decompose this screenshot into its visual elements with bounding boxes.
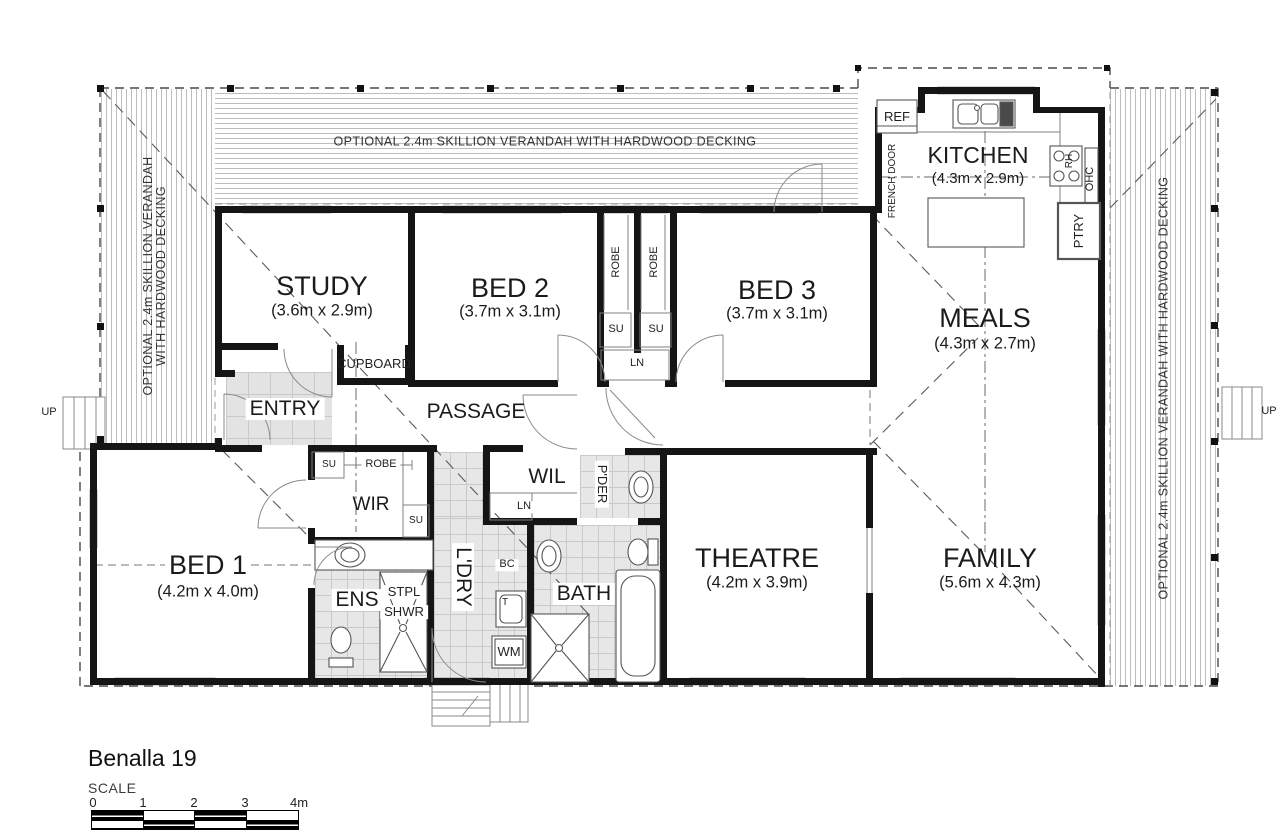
room-powder: P'DER [595, 461, 609, 508]
room-theatre: THEATRE [695, 544, 819, 572]
verandah-left-line2: WITH HARDWOOD DECKING [155, 156, 168, 395]
room-family-dims: (5.6m x 4.3m) [939, 574, 1041, 591]
su-wir-bottom: SU [405, 516, 427, 527]
robe-right-label: ROBE [649, 246, 661, 277]
room-ens: ENS [331, 589, 382, 611]
washing-machine-label: WM [497, 645, 520, 659]
scale-bar [91, 810, 299, 830]
room-bed3: BED 3 [738, 276, 816, 304]
scale-tick-1: 1 [139, 795, 146, 810]
room-bed1: BED 1 [165, 551, 251, 579]
robe-wir: ROBE [361, 459, 400, 471]
fridge-label: REF [884, 110, 910, 124]
room-bed2-dims: (3.7m x 3.1m) [459, 303, 561, 320]
room-theatre-dims: (4.2m x 3.9m) [706, 574, 808, 591]
room-kitchen: KITCHEN [928, 143, 1029, 167]
room-study: STUDY [276, 272, 368, 300]
linen-wil: LN [513, 501, 535, 513]
su-robe-right: SU [648, 324, 663, 336]
room-entry: ENTRY [246, 398, 325, 420]
su-robe-left: SU [608, 324, 623, 336]
pantry-label: PTRY [1072, 214, 1086, 248]
scale-tick-4m: 4m [290, 795, 308, 810]
floorplan-linework [0, 0, 1280, 834]
room-bath: BATH [553, 583, 615, 605]
robe-left-label: ROBE [611, 246, 623, 277]
room-passage: PASSAGE [427, 401, 526, 423]
linen-robes: LN [630, 358, 644, 370]
floor-plan: OPTIONAL 2.4m SKILLION VERANDAH WITH HAR… [0, 0, 1280, 834]
room-laundry: L'DRY [452, 543, 474, 611]
shower-shwr-label: SHWR [380, 605, 428, 619]
room-bed3-dims: (3.7m x 3.1m) [726, 305, 828, 322]
rangehood-label: RH [1065, 154, 1076, 168]
broom-cupboard-label: BC [495, 559, 518, 571]
scale-tick-2: 2 [190, 795, 197, 810]
french-door-label: FRENCH DOOR [888, 144, 899, 218]
ohc-label: OHC [1085, 167, 1097, 191]
scale-tick-3: 3 [241, 795, 248, 810]
verandah-left-label: OPTIONAL 2.4m SKILLION VERANDAH WITH HAR… [142, 156, 168, 395]
up-left-label: UP [41, 407, 56, 419]
room-wil: WIL [528, 466, 565, 488]
shower-stpl-label: STPL [384, 585, 425, 599]
plan-title: Benalla 19 [88, 745, 197, 772]
room-family: FAMILY [943, 544, 1037, 572]
room-study-dims: (3.6m x 2.9m) [271, 302, 373, 319]
room-bed1-dims: (4.2m x 4.0m) [153, 583, 263, 600]
scale-label: SCALE [88, 780, 136, 796]
verandah-top-label: OPTIONAL 2.4m SKILLION VERANDAH WITH HAR… [334, 135, 757, 148]
room-meals-dims: (4.3m x 2.7m) [934, 335, 1036, 352]
room-wir: WIR [353, 495, 390, 515]
verandah-right-label: OPTIONAL 2.4m SKILLION VERANDAH WITH HAR… [1157, 177, 1170, 600]
up-right-label: UP [1261, 406, 1276, 418]
room-kitchen-dims: (4.3m x 2.9m) [932, 171, 1025, 187]
su-wir-top: SU [318, 460, 340, 471]
room-cupboard: CUPBOARD [337, 357, 411, 371]
laundry-tub-label: T [502, 598, 508, 609]
room-meals: MEALS [939, 304, 1031, 332]
room-bed2: BED 2 [471, 274, 549, 302]
scale-tick-0: 0 [89, 795, 96, 810]
